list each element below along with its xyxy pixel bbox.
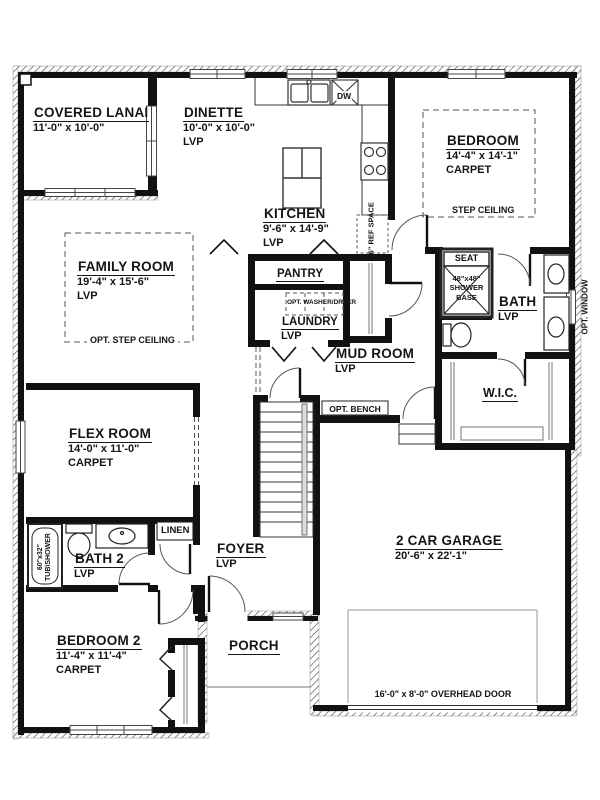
floor-plan: COVERED LANAI 11'-0" x 10'-0" DINETTE 10… <box>0 0 600 800</box>
tub-shower-label: 60"x32" TUB\SHOWER <box>37 529 53 585</box>
room-dims: 9'-6" x 14'-9" <box>263 223 329 237</box>
bedroom2-window <box>70 726 152 735</box>
opt-window-label: OPT. WINDOW <box>581 281 590 335</box>
cased-opening-dashes <box>195 347 261 485</box>
room-name: MUD ROOM <box>335 347 415 363</box>
kitchen-sink-window <box>287 70 337 79</box>
bedroom-window <box>448 70 505 79</box>
room-name: FOYER <box>216 542 266 558</box>
room-name: PORCH <box>228 639 280 655</box>
shower-size: 48"x48" <box>444 274 489 283</box>
room-name: 2 CAR GARAGE <box>395 534 503 550</box>
vanity2 <box>96 524 148 548</box>
kitchen-island <box>283 148 321 208</box>
room-name: BATH 2 <box>74 552 125 568</box>
ref-space-label: 36" REF SPACE <box>367 207 376 259</box>
room-label-flex-room: FLEX ROOM 14'-0" x 11'-0" CARPET <box>68 425 152 470</box>
room-label-bath2: BATH 2 LVP <box>74 550 125 581</box>
overhead-door-label: 16'-0" x 8'-0" OVERHEAD DOOR <box>352 689 534 699</box>
room-name: W.I.C. <box>482 387 518 402</box>
kitchen-sink <box>288 80 330 105</box>
stair-rail <box>302 404 307 535</box>
room-label-bedroom: BEDROOM 14'-4" x 14'-1" CARPET <box>446 132 520 177</box>
room-floor: CARPET <box>446 164 520 177</box>
garage-step <box>399 424 435 434</box>
room-floor: LVP <box>216 558 266 571</box>
room-label-family-room: FAMILY ROOM 19'-4" x 15'-6" LVP <box>77 258 175 303</box>
room-floor: LVP <box>281 330 339 343</box>
room-label-bath: BATH LVP <box>498 293 537 324</box>
room-dims: 14'-0" x 11'-0" <box>68 443 152 457</box>
stairs <box>260 402 313 537</box>
flex-room-window <box>16 421 25 473</box>
room-floor: LVP <box>335 363 415 376</box>
double-vanity <box>544 255 569 350</box>
room-floor: CARPET <box>56 664 142 677</box>
room-label-linen: LINEN <box>161 525 190 536</box>
lanai-bottom-window <box>45 189 135 197</box>
dishwasher-label: DW <box>336 91 352 101</box>
tub-type: TUB\SHOWER <box>45 529 53 585</box>
front-door-opening <box>208 611 248 622</box>
room-dims: 10'-0" x 10'-0" <box>183 122 255 136</box>
room-name: COVERED LANAI <box>33 106 149 122</box>
room-dims: 20'-6" x 22'-1" <box>395 550 503 564</box>
room-floor: LVP <box>74 568 125 581</box>
room-label-foyer: FOYER LVP <box>216 540 266 571</box>
room-floor: CARPET <box>68 457 152 470</box>
toilet-icon <box>443 323 471 347</box>
room-floor: LVP <box>77 290 175 303</box>
room-name: BEDROOM <box>446 134 520 150</box>
room-label-wic: W.I.C. <box>482 384 518 402</box>
room-label-covered-lanai: COVERED LANAI 11'-0" x 10'-0" <box>33 104 149 136</box>
seat-label: SEAT <box>444 253 489 263</box>
room-floor: LVP <box>183 136 255 149</box>
shower-base-label: 48"x48" SHOWER BASE <box>444 274 489 302</box>
room-name: LAUNDRY <box>281 316 339 330</box>
room-name: DINETTE <box>183 106 244 122</box>
lanai-corner-column <box>20 74 31 85</box>
room-name: FLEX ROOM <box>68 427 152 443</box>
room-name: FAMILY ROOM <box>77 260 175 276</box>
opt-step-ceiling-note: OPT. STEP CEILING <box>87 335 178 345</box>
room-label-porch: PORCH <box>228 637 280 655</box>
room-label-pantry: PANTRY <box>276 264 324 282</box>
dinette-window <box>190 70 245 79</box>
step-ceiling-note: STEP CEILING <box>449 205 517 215</box>
shower-line2: BASE <box>444 293 489 302</box>
opt-washer-dryer-note: OPT. WASHER/DRYER <box>287 299 343 306</box>
room-name: PANTRY <box>276 268 324 282</box>
room-floor: LVP <box>263 237 329 250</box>
room-name: KITCHEN <box>263 207 326 223</box>
garage-step <box>399 434 435 444</box>
room-label-laundry: LAUNDRY LVP <box>281 312 339 343</box>
room-dims: 19'-4" x 15'-6" <box>77 276 175 290</box>
room-name: BEDROOM 2 <box>56 634 142 650</box>
room-label-mud-room: MUD ROOM LVP <box>335 345 415 376</box>
room-dims: 11'-0" x 10'-0" <box>33 122 149 136</box>
room-dims: 14'-4" x 14'-1" <box>446 150 520 164</box>
room-label-garage: 2 CAR GARAGE 20'-6" x 22'-1" <box>395 532 503 564</box>
room-label-bedroom2: BEDROOM 2 11'-4" x 11'-4" CARPET <box>56 632 142 677</box>
bifold-door-icon <box>160 697 172 721</box>
room-dims: 11'-4" x 11'-4" <box>56 650 142 664</box>
tub-size: 60"x32" <box>37 529 45 585</box>
overhead-door-opening <box>348 703 537 713</box>
shower-line1: SHOWER <box>444 283 489 292</box>
room-label-kitchen: KITCHEN 9'-6" x 14'-9" LVP <box>263 205 329 250</box>
room-label-dinette: DINETTE 10'-0" x 10'-0" LVP <box>183 104 255 149</box>
laundry-closet-rod <box>369 263 372 334</box>
room-floor: LVP <box>498 311 537 324</box>
opt-bench-label: OPT. BENCH <box>324 404 386 414</box>
foyer-sidelight-window <box>273 613 303 620</box>
room-name: BATH <box>498 295 537 311</box>
range-icon <box>361 143 388 180</box>
